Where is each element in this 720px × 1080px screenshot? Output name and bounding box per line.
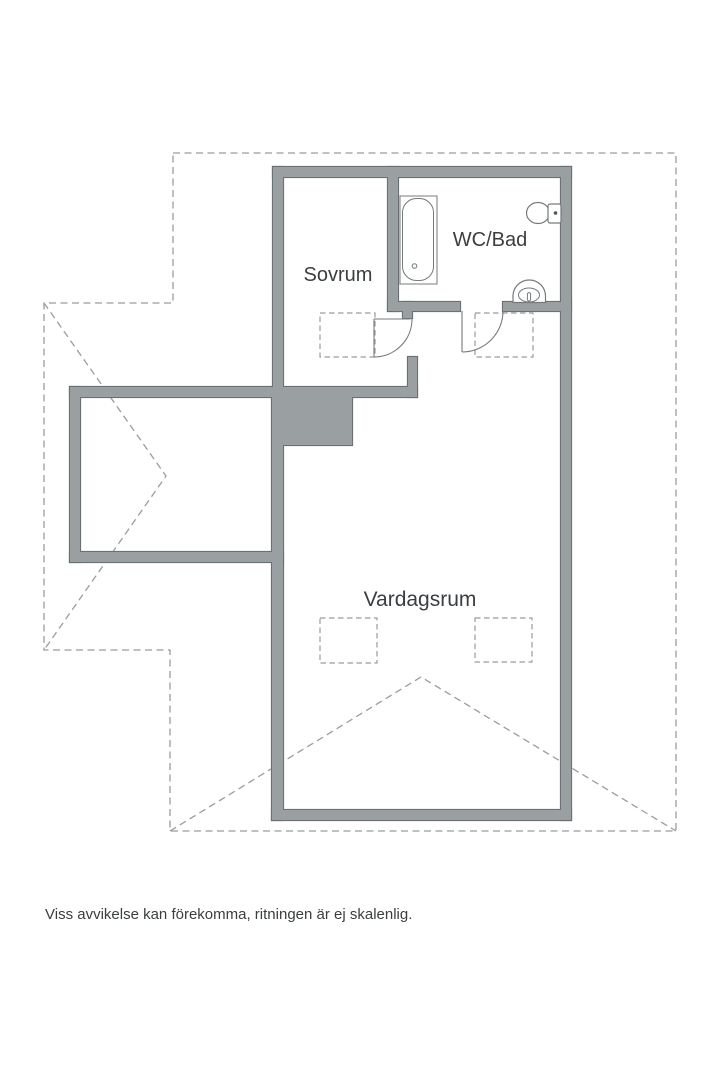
room-label-vardagsrum: Vardagsrum [364, 588, 477, 611]
bathtub-inner [403, 199, 434, 281]
sink-drain [527, 293, 530, 301]
floor-plan: Sovrum WC/Bad Vardagsrum Viss avvikelse … [0, 0, 720, 1080]
disclaimer-text: Viss avvikelse kan förekomma, ritningen … [45, 906, 412, 923]
roof-hip-left [44, 303, 166, 650]
doors [374, 311, 503, 357]
toilet [527, 203, 562, 224]
bathtub-drain [412, 264, 417, 269]
roof-outline [44, 153, 676, 831]
toilet-bowl [527, 203, 550, 224]
roof-hip-bottom [170, 677, 676, 831]
toilet-button [554, 211, 558, 215]
wc-door [462, 311, 503, 352]
room-label-sovrum: Sovrum [304, 264, 373, 286]
dashed-box-wc-nook [475, 313, 533, 357]
bathtub [400, 196, 437, 284]
dashed-box-sovrum [320, 313, 375, 357]
roof-outline-group [44, 153, 676, 831]
dashed-box-vardagsrum-left [320, 618, 377, 663]
dashed-box-vardagsrum-right [475, 618, 532, 662]
sink [513, 280, 546, 302]
floor-plan-page: Sovrum WC/Bad Vardagsrum Viss avvikelse … [0, 0, 720, 1080]
room-label-wc-bad: WC/Bad [453, 229, 527, 251]
sovrum-door [374, 319, 412, 357]
